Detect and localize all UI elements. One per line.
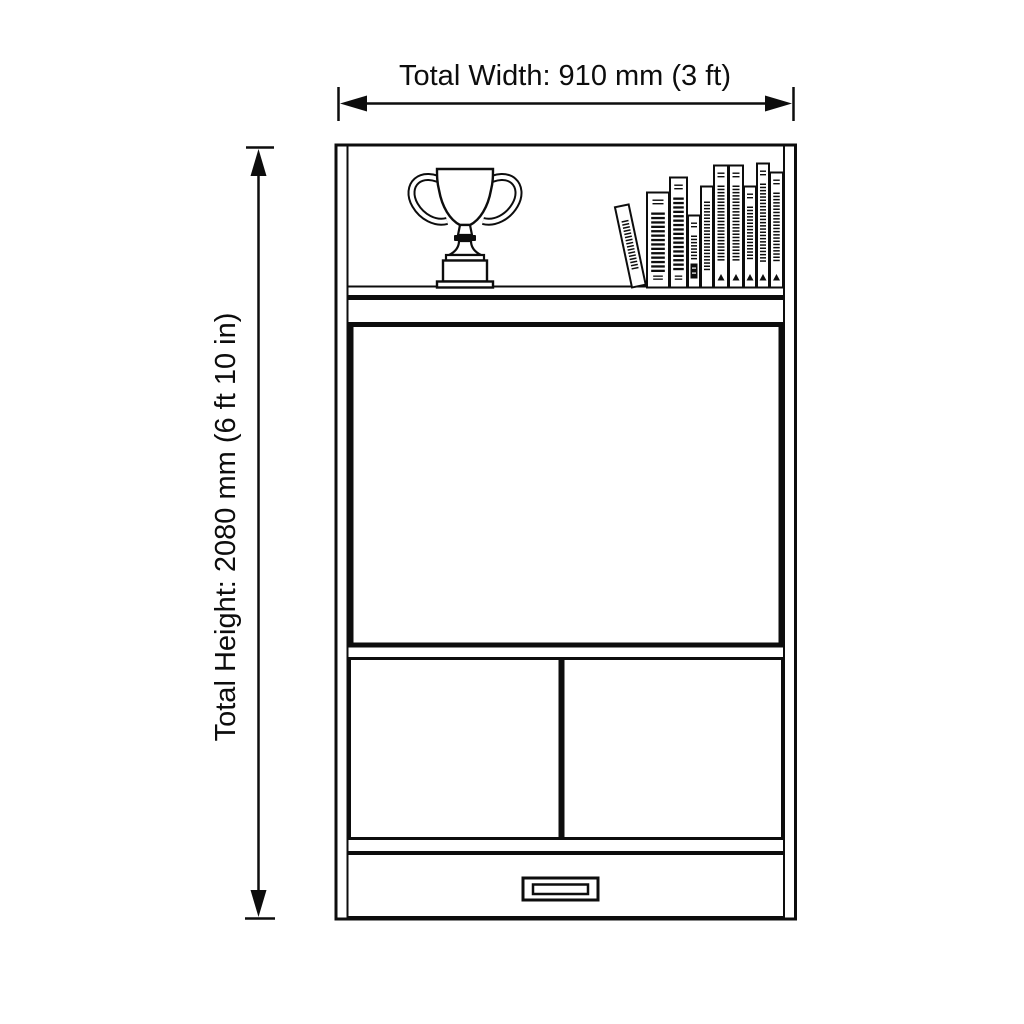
spine-text-mark <box>733 240 740 242</box>
spine-text-mark <box>718 205 725 207</box>
spine-text-mark <box>733 234 740 236</box>
spine-text-mark <box>747 223 753 225</box>
spine-text-mark <box>773 199 780 201</box>
spine-text-mark <box>733 256 740 258</box>
spine-text-mark <box>704 205 710 207</box>
spine-text-mark <box>718 189 725 191</box>
book-spine <box>729 166 743 288</box>
spine-text-mark <box>651 248 665 250</box>
spine-text-mark <box>691 258 697 260</box>
width-arrowhead-left <box>340 96 367 112</box>
spine-text-mark <box>747 255 753 257</box>
spine-text-mark <box>718 250 725 252</box>
spine-text-mark <box>747 242 753 244</box>
spine-text-mark <box>773 221 780 223</box>
book-spine <box>714 166 728 288</box>
spine-text-mark <box>673 220 684 222</box>
furniture-dimension-diagram: Total Width: 910 mm (3 ft) Total Height:… <box>0 0 1024 1024</box>
spine-text-mark <box>760 232 766 234</box>
spine-text-mark <box>673 215 684 217</box>
spine-text-mark <box>760 209 766 211</box>
spine-text-mark <box>651 252 665 254</box>
spine-text-mark <box>747 194 753 195</box>
spine-text-mark <box>691 245 697 247</box>
spine-text-mark <box>673 268 684 270</box>
spine-text-mark <box>651 265 665 267</box>
spine-text-mark <box>718 230 725 232</box>
spine-text-mark <box>673 228 684 230</box>
spine-text-mark <box>760 193 766 195</box>
spine-text-mark <box>653 276 663 277</box>
diagram-canvas: Total Width: 910 mm (3 ft) Total Height:… <box>0 0 1024 1024</box>
spine-text-mark <box>674 185 683 186</box>
spine-text-mark <box>760 222 766 224</box>
book-spine <box>701 187 713 288</box>
spine-text-mark <box>651 243 665 245</box>
spine-text-mark <box>773 228 780 230</box>
spine-text-mark <box>651 217 665 219</box>
spine-text-mark <box>747 245 753 247</box>
spine-text-mark <box>718 195 725 197</box>
spine-text-mark <box>760 248 766 250</box>
spine-text-mark <box>733 246 740 248</box>
spine-text-mark <box>718 227 725 229</box>
book-spine <box>647 193 669 288</box>
spine-text-mark <box>733 230 740 232</box>
spine-text-mark <box>760 235 766 237</box>
spine-text-mark <box>733 218 740 220</box>
spine-text-mark <box>651 226 665 228</box>
spine-text-mark <box>718 246 725 248</box>
spine-text-mark <box>747 197 753 198</box>
trophy-pedestal <box>443 261 487 282</box>
spine-text-mark <box>747 239 753 241</box>
spine-text-mark <box>704 211 710 213</box>
spine-text-mark <box>733 214 740 216</box>
spine-text-mark <box>747 216 753 218</box>
spine-text-mark <box>733 224 740 226</box>
spine-text-mark <box>733 243 740 245</box>
spine-text-mark <box>704 202 710 204</box>
trophy-stem-flare <box>449 241 481 255</box>
spine-text-mark <box>704 253 710 255</box>
spine-text-mark <box>760 219 766 221</box>
spine-text-mark <box>733 227 740 229</box>
spine-text-mark <box>704 230 710 232</box>
spine-text-mark <box>718 240 725 242</box>
spine-text-mark <box>773 209 780 211</box>
spine-text-mark <box>718 256 725 258</box>
spine-text-mark <box>773 202 780 204</box>
spine-text-mark <box>673 224 684 226</box>
spine-text-mark <box>747 258 753 260</box>
spine-text-mark <box>773 234 780 236</box>
spine-text-mark <box>733 237 740 239</box>
books <box>615 164 783 288</box>
spine-text-mark <box>760 203 766 205</box>
spine-text-mark <box>704 250 710 252</box>
spine-text-mark <box>773 196 780 198</box>
spine-text-mark <box>760 190 766 192</box>
spine-text-mark <box>673 242 684 244</box>
spine-text-mark <box>718 221 725 223</box>
spine-text-mark <box>704 240 710 242</box>
spine-text-mark <box>760 257 766 259</box>
spine-text-mark <box>718 243 725 245</box>
spine-text-mark <box>773 218 780 220</box>
spine-text-mark <box>704 227 710 229</box>
spine-text-mark <box>718 211 725 213</box>
spine-text-mark <box>747 251 753 253</box>
spine-text-mark <box>704 224 710 226</box>
spine-text-mark <box>733 192 740 194</box>
spine-text-mark <box>704 218 710 220</box>
spine-text-mark <box>718 224 725 226</box>
spine-text-mark <box>773 244 780 246</box>
spine-text-mark <box>691 255 697 257</box>
spine-text-mark <box>651 270 665 272</box>
spine-text-mark <box>691 248 697 250</box>
spine-text-mark <box>773 231 780 233</box>
spine-text-mark <box>718 173 725 174</box>
spine-text-mark <box>718 198 725 200</box>
spine-text-mark <box>704 221 710 223</box>
spine-text-mark <box>704 246 710 248</box>
spine-text-mark <box>691 239 697 241</box>
book-spine <box>615 204 646 287</box>
spine-text-mark <box>760 251 766 253</box>
spine-text-mark <box>691 252 697 254</box>
book-spine <box>744 187 756 288</box>
spine-text-mark <box>653 279 663 280</box>
spine-text-mark <box>718 253 725 255</box>
spine-text-mark <box>733 173 740 174</box>
spine-text-mark <box>651 235 665 237</box>
spine-text-mark <box>675 279 682 280</box>
spine-text-mark <box>704 262 710 264</box>
book-spine <box>757 164 769 288</box>
spine-text-mark <box>691 236 697 238</box>
spine-text-mark <box>773 225 780 227</box>
spine-text-mark <box>773 257 780 259</box>
spine-text-mark <box>673 198 684 200</box>
spine-text-mark <box>747 207 753 209</box>
spine-text-mark <box>718 176 725 177</box>
spine-text-mark <box>718 214 725 216</box>
height-dimension: Total Height: 2080 mm (6 ft 10 in) <box>210 148 275 919</box>
spine-text-mark <box>760 225 766 227</box>
trophy-icon <box>411 169 518 288</box>
spine-text-mark <box>651 221 665 223</box>
spine-text-mark <box>773 241 780 243</box>
spine-text-mark <box>773 250 780 252</box>
spine-text-mark <box>773 205 780 207</box>
spine-text-mark <box>760 196 766 198</box>
trophy-neck <box>458 225 472 235</box>
spine-text-mark <box>747 210 753 212</box>
spine-text-mark <box>760 254 766 256</box>
spine-text-mark <box>673 255 684 257</box>
spine-text-mark <box>691 242 697 244</box>
spine-text-mark <box>760 241 766 243</box>
width-dimension: Total Width: 910 mm (3 ft) <box>339 60 794 121</box>
spine-text-mark <box>674 188 683 189</box>
spine-text-mark <box>747 232 753 234</box>
spine-text-mark <box>773 253 780 255</box>
spine-text-mark <box>651 257 665 259</box>
spine-text-mark <box>675 276 682 277</box>
spine-text-mark <box>673 211 684 213</box>
spine-text-mark <box>760 200 766 202</box>
total-height-label: Total Height: 2080 mm (6 ft 10 in) <box>210 313 242 742</box>
book-spine <box>670 178 687 288</box>
spine-text-mark <box>704 234 710 236</box>
spine-text-mark <box>733 195 740 197</box>
spine-text-mark <box>760 244 766 246</box>
spine-text-mark <box>760 212 766 214</box>
spine-text-mark <box>773 180 780 181</box>
spine-text-mark <box>760 174 766 175</box>
spine-text-mark <box>760 184 766 186</box>
spine-text-mark <box>704 266 710 268</box>
spine-text-mark <box>760 216 766 218</box>
spine-text-mark <box>773 260 780 262</box>
spine-text-mark <box>691 226 697 227</box>
width-arrowhead-right <box>765 96 792 112</box>
spine-text-mark <box>651 230 665 232</box>
spine-text-mark <box>747 213 753 215</box>
spine-text-mark <box>733 250 740 252</box>
spine-text-mark <box>704 214 710 216</box>
spine-text-mark <box>718 208 725 210</box>
spine-text-mark <box>773 183 780 184</box>
spine-text-mark <box>747 229 753 231</box>
spine-text-mark <box>673 259 684 261</box>
total-width-label: Total Width: 910 mm (3 ft) <box>399 60 731 92</box>
height-arrowhead-top <box>251 149 267 176</box>
spine-text-mark <box>653 203 664 204</box>
spine-text-mark <box>773 212 780 214</box>
spine-text-mark <box>704 208 710 210</box>
spine-text-mark <box>718 202 725 204</box>
spine-text-mark <box>760 206 766 208</box>
spine-text-mark <box>760 228 766 230</box>
spine-text-mark <box>733 253 740 255</box>
spine-text-mark <box>673 246 684 248</box>
spine-text-mark <box>718 192 725 194</box>
spine-text-mark <box>760 238 766 240</box>
spine-text-mark <box>733 211 740 213</box>
spine-text-mark <box>653 200 664 201</box>
spine-text-mark <box>718 237 725 239</box>
spine-barcode <box>691 264 698 279</box>
spine-text-mark <box>718 259 725 261</box>
spine-text-mark <box>733 259 740 261</box>
spine-text-mark <box>673 237 684 239</box>
book-spine <box>688 216 700 288</box>
spine-text-mark <box>704 269 710 271</box>
spine-text-mark <box>673 233 684 235</box>
spine-text-mark <box>673 264 684 266</box>
spine-text-mark <box>733 221 740 223</box>
spine-text-mark <box>773 215 780 217</box>
trophy-cup <box>437 169 493 225</box>
spine-text-mark <box>718 234 725 236</box>
spine-text-mark <box>733 202 740 204</box>
spine-text-mark <box>704 243 710 245</box>
lower-compartments-outline <box>350 659 783 839</box>
spine-text-mark <box>773 247 780 249</box>
spine-text-mark <box>747 219 753 221</box>
spine-text-mark <box>733 198 740 200</box>
spine-text-mark <box>760 171 766 172</box>
spine-text-mark <box>733 189 740 191</box>
spine-text-mark <box>704 259 710 261</box>
spine-text-mark <box>733 208 740 210</box>
spine-text-mark <box>691 223 697 224</box>
spine-text-mark <box>733 205 740 207</box>
spine-text-mark <box>673 206 684 208</box>
spine-text-mark <box>747 226 753 228</box>
spine-text-mark <box>718 218 725 220</box>
spine-text-mark <box>673 250 684 252</box>
spine-text-mark <box>760 187 766 189</box>
spine-text-mark <box>704 237 710 239</box>
spine-text-mark <box>773 237 780 239</box>
trophy-plinth <box>437 282 493 288</box>
drawer-handle-inset <box>533 885 588 895</box>
height-arrowhead-bottom <box>251 890 267 917</box>
spine-text-mark <box>760 260 766 262</box>
spine-text-mark <box>773 193 780 195</box>
spine-text-mark <box>704 256 710 258</box>
spine-text-mark <box>718 186 725 188</box>
spine-text-mark <box>673 202 684 204</box>
book-spine <box>770 173 783 288</box>
spine-text-mark <box>733 186 740 188</box>
spine-text-mark <box>747 235 753 237</box>
spine-text-mark <box>651 261 665 263</box>
spine-text-mark <box>651 213 665 215</box>
spine-text-mark <box>651 239 665 241</box>
spine-text-mark <box>747 248 753 250</box>
door-panel <box>351 325 781 646</box>
spine-text-mark <box>733 176 740 177</box>
